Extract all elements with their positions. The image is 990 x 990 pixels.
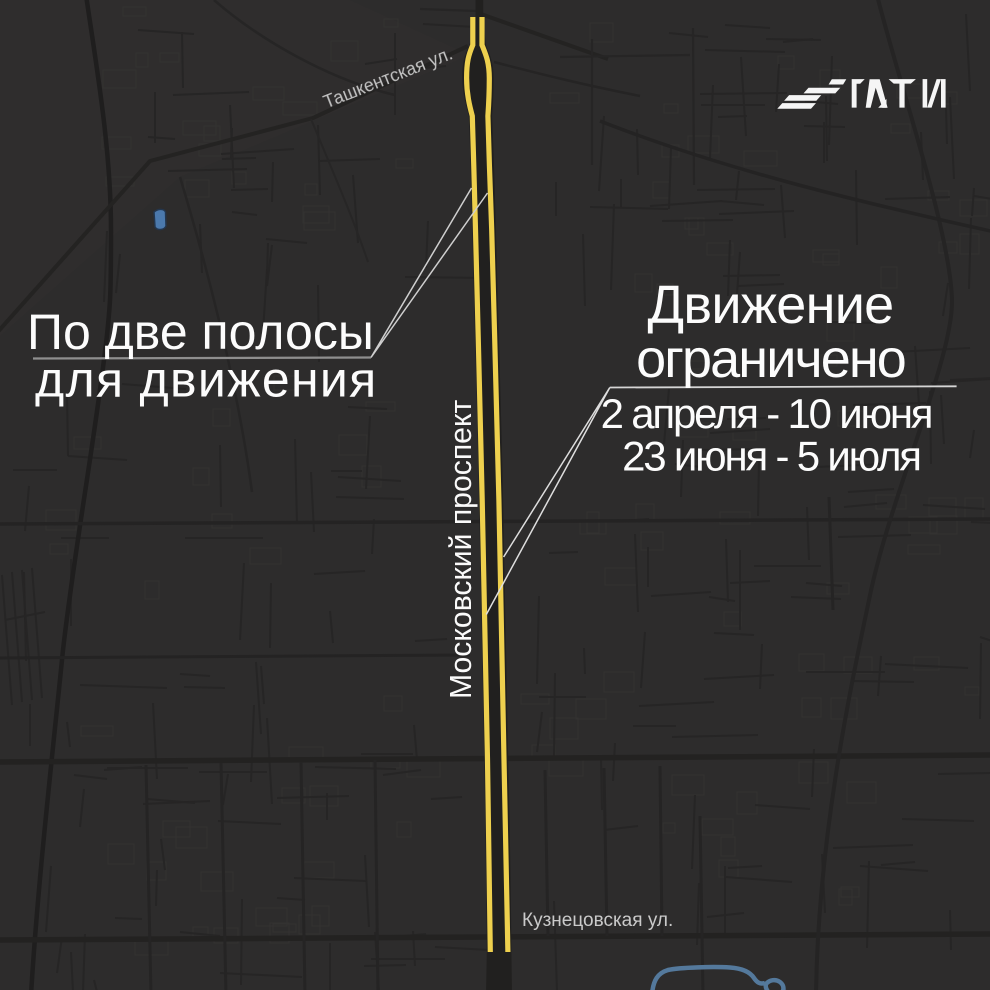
svg-text:23 июня - 5 июля: 23 июня - 5 июля xyxy=(622,433,920,480)
svg-text:Движение: Движение xyxy=(648,275,894,335)
svg-text:Кузнецовская ул.: Кузнецовская ул. xyxy=(522,910,673,931)
svg-text:для движения: для движения xyxy=(35,352,377,408)
svg-text:2 апреля - 10 июня: 2 апреля - 10 июня xyxy=(601,390,932,437)
svg-text:ограничено: ограничено xyxy=(636,329,905,389)
svg-text:Московский проспект: Московский проспект xyxy=(445,399,478,699)
